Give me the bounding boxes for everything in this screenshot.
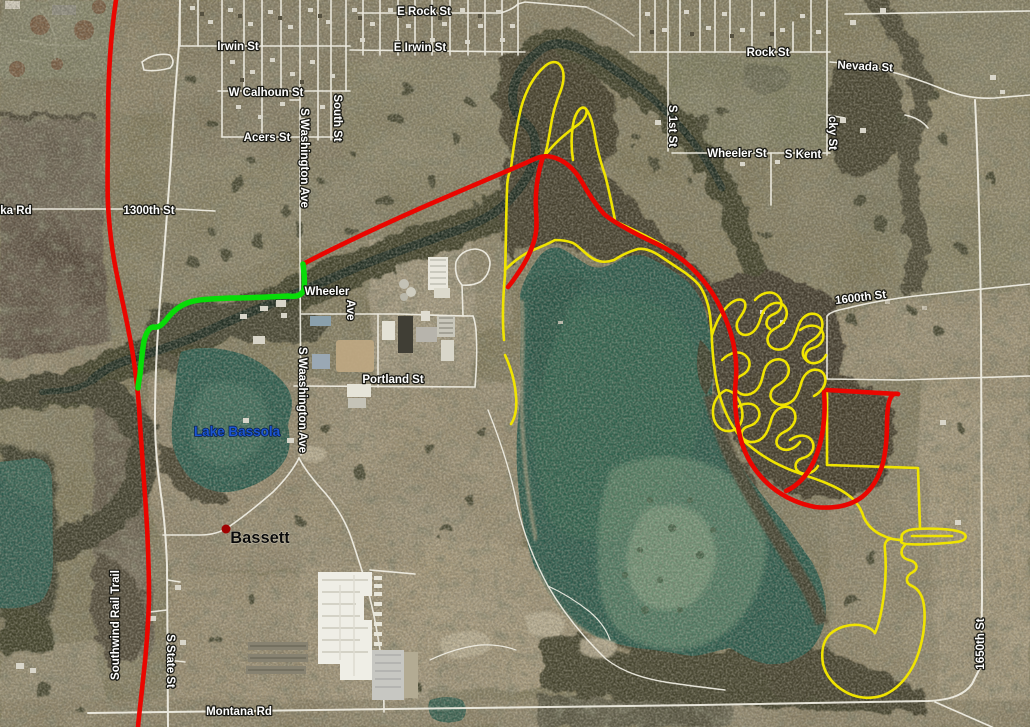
svg-text:S 1st St: S 1st St	[666, 105, 678, 147]
svg-text:Wheeler: Wheeler	[305, 286, 350, 298]
svg-text:S Washington Ave: S Washington Ave	[298, 108, 310, 208]
svg-text:Portland St: Portland St	[362, 374, 424, 386]
svg-text:S Waashington Ave: S Waashington Ave	[296, 347, 308, 453]
svg-text:Ave: Ave	[344, 300, 356, 321]
svg-text:Wheeler St: Wheeler St	[707, 148, 767, 160]
svg-text:W Calhoun St: W Calhoun St	[229, 87, 304, 99]
svg-text:cky St: cky St	[826, 116, 838, 150]
svg-text:Bassett: Bassett	[230, 529, 290, 547]
svg-text:South St: South St	[331, 94, 343, 141]
svg-text:E Rock St: E Rock St	[397, 6, 451, 18]
svg-text:Montana Rd: Montana Rd	[206, 706, 272, 718]
svg-text:braska Rd: braska Rd	[0, 205, 32, 217]
svg-text:Lake Bassola: Lake Bassola	[194, 424, 281, 439]
svg-text:1300th St: 1300th St	[123, 205, 174, 217]
svg-text:S State St: S State St	[164, 634, 176, 688]
svg-text:Irwin St: Irwin St	[217, 41, 259, 53]
svg-text:Rock St: Rock St	[747, 47, 790, 59]
svg-text:S Kent: S Kent	[785, 149, 822, 161]
svg-text:Southwind Rail Trail: Southwind Rail Trail	[110, 570, 122, 680]
svg-text:Acers St: Acers St	[244, 132, 291, 144]
svg-text:1650th St: 1650th St	[975, 618, 987, 669]
svg-text:E Irwin St: E Irwin St	[394, 42, 447, 54]
